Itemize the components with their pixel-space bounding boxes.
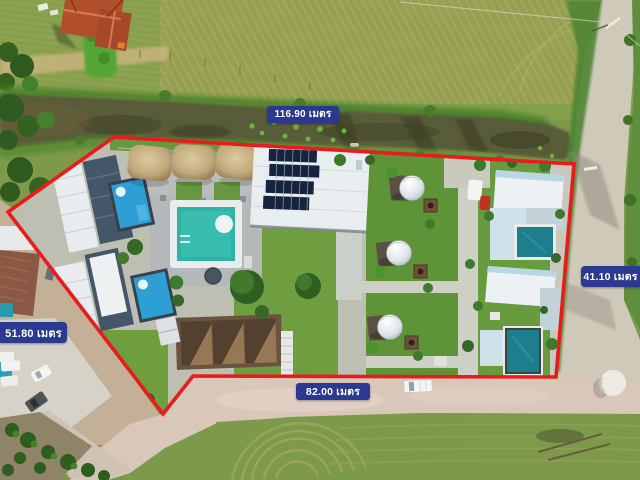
pool-villa-right-lower: [503, 326, 543, 376]
measurement-badge-left: 51.80 เมตร: [0, 322, 67, 343]
aerial-photo: 116.90 เมตร 41.10 เมตร 82.00 เมตร 51.80 …: [0, 0, 640, 480]
pickup-on-road: [404, 379, 433, 392]
measurement-badge-top: 116.90 เมตร: [267, 106, 339, 123]
aerial-photo-scene: [0, 0, 640, 480]
thatch-pavilion: [175, 314, 283, 370]
measurement-badge-right: 41.10 เมตร: [581, 266, 640, 287]
drain-pad: [434, 356, 447, 366]
white-van: [467, 180, 482, 201]
walkway-bridge: [281, 331, 293, 377]
small-boat: [350, 143, 359, 147]
measurement-badge-bottom: 82.00 เมตร: [296, 383, 370, 400]
pool-villa-right-upper: [514, 224, 556, 260]
solar-panel-building: [250, 146, 370, 232]
red-car: [480, 196, 491, 211]
hot-tub: [205, 268, 221, 284]
